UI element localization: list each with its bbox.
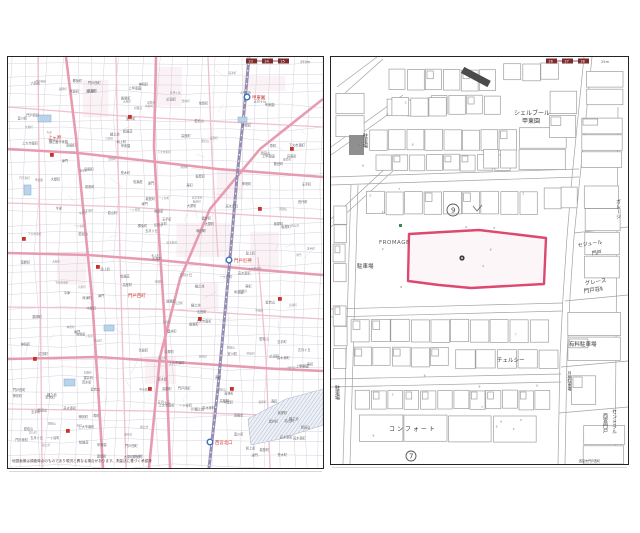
micro-label: 一ヶ谷町	[130, 208, 141, 212]
building	[481, 191, 499, 214]
micro-label: 藤田町	[274, 161, 284, 166]
building	[427, 155, 443, 171]
micro-label: 広田町	[210, 136, 218, 140]
micro-label: 若山町	[291, 224, 299, 228]
micro-label: 愛宕山	[78, 231, 88, 236]
micro-label: 雲井町	[182, 99, 190, 103]
building-annex	[501, 131, 508, 139]
station-icon	[226, 257, 232, 263]
micro-label: 伏原町	[139, 348, 149, 353]
micro-label: 門戸東町	[15, 437, 29, 442]
micro-label: 一ヶ谷町	[159, 196, 170, 200]
micro-label: 薬師町	[191, 407, 199, 411]
micro-label: 愛宕山	[265, 299, 275, 304]
micro-label: 神呪町	[154, 223, 162, 227]
building	[336, 93, 364, 113]
unit-number: 8	[479, 384, 481, 388]
micro-label: 広田町	[175, 301, 183, 305]
micro-label: 常磐町	[85, 184, 95, 189]
building	[411, 320, 429, 342]
micro-label: 門戸東町	[19, 176, 30, 180]
unit-number: 8	[412, 143, 414, 147]
micro-label: 室川町	[227, 351, 237, 356]
map-label: 西宮門戸	[602, 413, 608, 434]
micro-label: 和上町	[246, 446, 256, 451]
building	[584, 186, 618, 208]
micro-label: 深津町	[163, 320, 171, 324]
building	[501, 192, 518, 215]
micro-label: 五月ヶ丘	[298, 347, 312, 352]
micro-label: 寿町	[77, 424, 83, 428]
building	[405, 192, 423, 214]
building	[334, 264, 347, 282]
micro-label: 上甲東園	[262, 153, 275, 158]
building-annex	[520, 392, 526, 399]
micro-label: 中屋町	[145, 104, 153, 108]
micro-label: 岡田山	[301, 425, 311, 430]
micro-label: 大屋町	[25, 125, 33, 129]
micro-label: 津門	[98, 293, 104, 298]
micro-label: 今津	[46, 130, 52, 134]
building	[539, 350, 558, 368]
micro-label: 薬師町	[21, 260, 31, 265]
micro-label: 板屋町	[80, 169, 88, 173]
building	[388, 390, 403, 408]
micro-label: 愛宕山	[194, 118, 204, 123]
building	[370, 130, 388, 151]
unit-number: 2	[405, 100, 407, 104]
micro-label: 門戸西町	[88, 81, 102, 85]
building	[481, 130, 498, 151]
micro-label: 津門	[141, 201, 147, 206]
pond	[38, 115, 51, 122]
building	[373, 347, 390, 365]
micro-label: 常磐町	[180, 165, 188, 169]
landmark-square	[148, 387, 152, 391]
micro-label: 上大市南町	[22, 141, 39, 146]
micro-label: 津門	[62, 158, 68, 163]
micro-label: 高座町	[123, 282, 133, 287]
micro-label: 雲井町	[84, 375, 94, 380]
building	[408, 70, 425, 90]
micro-label: 下大市東町	[55, 280, 69, 284]
building	[336, 116, 364, 137]
micro-label: 甲東園	[139, 387, 147, 391]
micro-label: 室川町	[29, 430, 37, 434]
building-annex	[425, 193, 432, 201]
unit-number: 8	[373, 434, 375, 438]
page-tab-number: 24	[265, 60, 269, 64]
building	[444, 130, 462, 150]
micro-label: 若山町	[108, 210, 118, 215]
building-annex	[373, 392, 379, 399]
circled-number-text: 7	[409, 453, 413, 461]
building	[410, 155, 425, 171]
micro-label: 玉手町	[277, 339, 287, 344]
micro-label: 神呪町	[242, 181, 252, 186]
micro-label: 室川町	[234, 432, 244, 437]
building	[501, 150, 517, 168]
micro-label: 樋之池	[195, 284, 205, 289]
micro-label: 玉手町	[307, 246, 315, 250]
micro-label: 染殿町	[155, 280, 163, 284]
building	[388, 130, 405, 150]
pond	[238, 117, 247, 122]
station-name: 門戸厄神	[234, 257, 252, 264]
building	[425, 129, 443, 150]
map-label: 月極駐車場	[568, 371, 573, 392]
micro-label: 田代町	[199, 354, 207, 358]
unit-number: 7	[515, 332, 517, 336]
building-annex	[583, 119, 598, 125]
building	[449, 95, 465, 114]
scan-edge-left	[9, 471, 322, 472]
micro-label: 板屋町	[278, 410, 288, 415]
micro-label: 常磐町	[199, 100, 209, 105]
building	[454, 390, 469, 408]
micro-label: 松籟荘	[123, 128, 133, 133]
detail-map-panel: 97シェルブール甲東園FROMAGE駐車場チェルシーコンフォート有料駐車場グレー…	[330, 56, 629, 465]
micro-label: 深津町	[198, 229, 206, 233]
micro-label: 一ヶ谷町	[47, 435, 61, 440]
landmark-square	[198, 317, 202, 321]
building	[389, 69, 405, 89]
highlighted-parcel	[408, 230, 546, 288]
micro-label: 丸橋町	[84, 371, 92, 375]
unit-number: 2	[513, 427, 515, 431]
building-annex	[427, 71, 433, 79]
wide-area-map: 室川町松籟荘高座町甲東園能登町雲井町板屋町上大市南町一ヶ谷町若山町高木東町深津町…	[8, 57, 323, 468]
micro-label: 寿町	[307, 362, 314, 367]
micro-label: 板屋町	[299, 364, 307, 368]
pond	[24, 185, 31, 195]
micro-label: 荒木町	[158, 376, 168, 381]
landmark-square	[66, 429, 70, 433]
building	[502, 390, 517, 408]
micro-label: 大屋町	[205, 221, 215, 226]
building-annex	[422, 392, 428, 399]
micro-label: 高木東町	[280, 434, 294, 439]
building	[376, 155, 391, 170]
micro-label: 大屋町	[123, 99, 131, 103]
building	[391, 319, 410, 341]
building	[450, 319, 468, 341]
micro-label: 深津町	[82, 295, 92, 300]
building	[429, 98, 446, 117]
micro-label: 玉手町	[162, 217, 172, 222]
micro-label: 荒木町	[82, 380, 92, 385]
building-annex	[432, 349, 439, 356]
station-icon	[244, 94, 250, 100]
building-annex	[462, 156, 468, 162]
unit-number: 7	[398, 187, 400, 191]
page-tab-number: 28	[581, 60, 585, 64]
building	[581, 152, 621, 168]
micro-label: 甲東園	[35, 178, 43, 182]
map-label: シェルブール	[514, 109, 550, 117]
building	[411, 348, 429, 367]
map-label: 駐車場	[362, 132, 368, 149]
micro-label: 一ヶ谷町	[220, 274, 234, 279]
building	[462, 130, 479, 150]
micro-label: 門戸西町	[178, 387, 192, 391]
unit-number: 2	[522, 192, 524, 196]
unit-number: 5	[369, 193, 371, 197]
micro-label: 段上町	[246, 251, 256, 256]
micro-label: 松籟荘	[133, 179, 143, 184]
building-annex	[471, 392, 477, 399]
micro-label: 高座町	[220, 398, 230, 403]
unit-number: 6	[362, 164, 364, 168]
building	[510, 320, 528, 343]
scale-note: 250m	[300, 60, 311, 64]
site-marker	[459, 255, 464, 260]
scan-edge-right	[332, 467, 627, 468]
building-annex	[573, 377, 582, 388]
unit-number: 8	[424, 374, 426, 378]
micro-label: 高木東町	[226, 204, 240, 209]
micro-label: 板屋町	[193, 200, 201, 204]
building	[582, 135, 622, 151]
micro-label: 樋之池	[289, 416, 299, 421]
building	[484, 96, 500, 114]
unit-number: 11	[381, 210, 385, 214]
circled-number-text: 9	[451, 207, 455, 215]
micro-label: 中屋町	[255, 309, 263, 313]
micro-label: 寿町	[270, 143, 277, 148]
building-annex	[394, 156, 400, 162]
building	[334, 206, 347, 224]
wide-area-map-panel: 室川町松籟荘高座町甲東園能登町雲井町板屋町上大市南町一ヶ谷町若山町高木東町深津町…	[7, 56, 324, 469]
building-annex	[406, 392, 412, 399]
micro-label: 今津	[56, 206, 63, 211]
unit-number: 7	[481, 405, 483, 409]
micro-label: 大屋町	[187, 203, 197, 208]
micro-label: 岡田山	[37, 407, 47, 412]
micro-label: 若山町	[94, 339, 102, 343]
green-mark	[399, 224, 402, 227]
building-annex	[445, 156, 451, 162]
micro-label: 中屋町	[164, 349, 174, 354]
micro-label: 段上町	[101, 266, 111, 271]
micro-label: 一ヶ谷町	[82, 334, 93, 338]
micro-label: 下大市東町	[289, 143, 306, 148]
landmark-square	[258, 207, 262, 211]
building	[544, 188, 561, 209]
building-annex	[468, 97, 474, 104]
micro-label: 一ヶ谷町	[74, 224, 85, 228]
map-label: 西宮市門戸西町	[579, 458, 600, 463]
building	[449, 416, 492, 442]
station-name: 西宮北口	[215, 439, 233, 446]
building	[456, 350, 476, 369]
micro-label: 雲井町	[269, 418, 279, 423]
micro-label: 染殿町	[162, 386, 172, 391]
micro-label: 中屋町	[87, 305, 97, 310]
micro-label: 高木東町	[238, 271, 252, 276]
micro-label: 広田町	[166, 97, 176, 102]
micro-label: 寿町	[93, 413, 100, 418]
micro-label: 板屋町	[274, 221, 284, 226]
micro-label: 岡田山	[279, 207, 287, 211]
micro-label: 樋之池	[140, 425, 148, 429]
map-label: チェルシー	[497, 357, 525, 364]
micro-label: 甲東園	[97, 442, 107, 447]
building	[334, 348, 346, 368]
micro-label: 伏原町	[87, 88, 97, 93]
micro-label: 段上町	[42, 443, 50, 447]
micro-label: 田代町	[288, 366, 296, 370]
building	[587, 71, 624, 87]
micro-label: 門戸西町	[36, 80, 47, 84]
micro-label: 五月ヶ丘	[145, 228, 159, 233]
building-annex	[335, 307, 340, 315]
micro-label: 染殿町	[66, 142, 76, 147]
building	[530, 320, 548, 342]
micro-label: 神呪町	[13, 393, 23, 398]
unit-number: 8	[358, 142, 360, 146]
micro-label: 寿町	[245, 284, 252, 289]
micro-label: 丸橋町	[135, 454, 143, 458]
building	[585, 256, 620, 278]
landmark-square	[96, 265, 100, 269]
micro-label: 樋之池	[47, 392, 57, 397]
page-tab-number: 26	[549, 60, 553, 64]
micro-label: 能登町	[283, 157, 291, 161]
building-annex	[373, 321, 380, 329]
micro-label: 六軒町	[105, 136, 113, 140]
micro-label: 上甲東園	[129, 86, 142, 91]
micro-label: 岡田山	[227, 346, 235, 350]
micro-label: 常磐町	[154, 208, 164, 213]
landmark-square	[22, 237, 26, 241]
micro-label: 大屋町	[52, 259, 60, 263]
micro-label: 高座町	[181, 133, 191, 138]
micro-label: 薬師町	[97, 454, 107, 459]
micro-label: 高座町	[289, 303, 297, 307]
building	[490, 320, 508, 343]
micro-label: 郷免町	[73, 78, 83, 83]
micro-label: 高木東町	[192, 195, 203, 199]
building	[587, 89, 623, 105]
micro-label: 松籟荘	[120, 274, 130, 279]
building	[355, 390, 369, 409]
station-name: 甲東園	[252, 94, 266, 101]
micro-label: 松籟荘	[239, 289, 247, 293]
micro-label: 雲井町	[167, 328, 177, 333]
building-annex	[464, 193, 471, 201]
micro-label: 門戸西町	[13, 388, 27, 392]
landmark-square	[33, 357, 37, 361]
micro-label: 寿町	[215, 375, 222, 380]
unit-number: 6	[536, 384, 538, 388]
micro-label: 神呪町	[67, 325, 75, 329]
micro-label: 広田町	[38, 351, 48, 356]
micro-label: 中屋町	[242, 122, 252, 127]
micro-label: 寿町	[186, 182, 193, 187]
building	[334, 326, 347, 345]
micro-label: 中屋町	[247, 351, 255, 355]
micro-label: 五月ヶ丘	[170, 91, 181, 95]
micro-label: 津門	[252, 453, 258, 458]
building-annex	[355, 349, 362, 356]
building	[470, 320, 489, 342]
building	[535, 391, 550, 410]
building	[443, 69, 460, 90]
landmark-square	[290, 147, 294, 151]
building	[504, 64, 521, 80]
building	[411, 98, 428, 116]
map-label: FROMAGE	[379, 240, 410, 246]
building	[568, 312, 621, 335]
micro-label: 和上町	[151, 254, 159, 258]
scale-note: 25m	[601, 60, 610, 64]
micro-label: 雲井町	[108, 157, 116, 161]
red-place-label: 上ヶ原	[48, 134, 62, 141]
building	[407, 130, 424, 150]
map-label: 甲東園	[522, 117, 540, 125]
micro-label: 郷免町	[138, 223, 148, 228]
micro-label: 上大市南町	[248, 266, 262, 270]
map-label: 有料駐車場	[569, 340, 597, 348]
micro-label: 田代町	[298, 199, 308, 204]
micro-label: 玉手町	[302, 182, 312, 187]
micro-label: 高木東町	[83, 208, 94, 212]
building	[519, 149, 565, 169]
micro-label: 愛宕山	[259, 336, 269, 341]
scanned-map-page: 室川町松籟荘高座町甲東園能登町雲井町板屋町上大市南町一ヶ谷町若山町高木東町深津町…	[0, 0, 640, 533]
micro-label: 深津町	[228, 71, 236, 75]
page-tab-number: 27	[565, 60, 569, 64]
micro-label: 門戸西町	[125, 444, 139, 448]
map-label: 駐車場	[334, 384, 340, 401]
pond	[64, 379, 75, 386]
building-annex	[488, 392, 494, 399]
page-tab-number: 25	[281, 60, 285, 64]
page-tab-number: 23	[249, 60, 253, 64]
building	[561, 187, 577, 208]
micro-label: 津門	[296, 253, 302, 257]
pond	[104, 325, 114, 331]
micro-label: 荒木町	[121, 170, 131, 175]
building	[438, 391, 452, 409]
station-icon	[207, 439, 213, 445]
micro-label: 広田町	[197, 309, 207, 314]
unit-number: 6	[500, 419, 502, 423]
detail-parcel-map: 97シェルブール甲東園FROMAGE駐車場チェルシーコンフォート有料駐車場グレー…	[331, 57, 628, 464]
building	[541, 63, 559, 79]
building	[334, 225, 346, 243]
micro-label: 甲東園	[121, 143, 131, 148]
micro-label: 岡田山	[218, 388, 226, 392]
building	[484, 149, 499, 168]
building-annex	[353, 321, 360, 329]
micro-label: 田代町	[124, 432, 132, 436]
unit-number: 4	[382, 247, 384, 251]
building	[431, 320, 450, 343]
micro-label: 能登町	[146, 196, 156, 201]
red-place-label: 門戸西町	[128, 293, 146, 299]
unit-number: 6	[496, 425, 498, 429]
micro-label: 津門	[74, 329, 80, 334]
micro-label: 能登町	[260, 447, 270, 452]
building-annex	[335, 246, 340, 253]
micro-label: 段上町	[158, 356, 166, 360]
building	[386, 192, 403, 215]
micro-label: 薬師町	[32, 314, 42, 319]
micro-label: 高木東町	[293, 435, 307, 440]
area-tint	[83, 80, 109, 118]
